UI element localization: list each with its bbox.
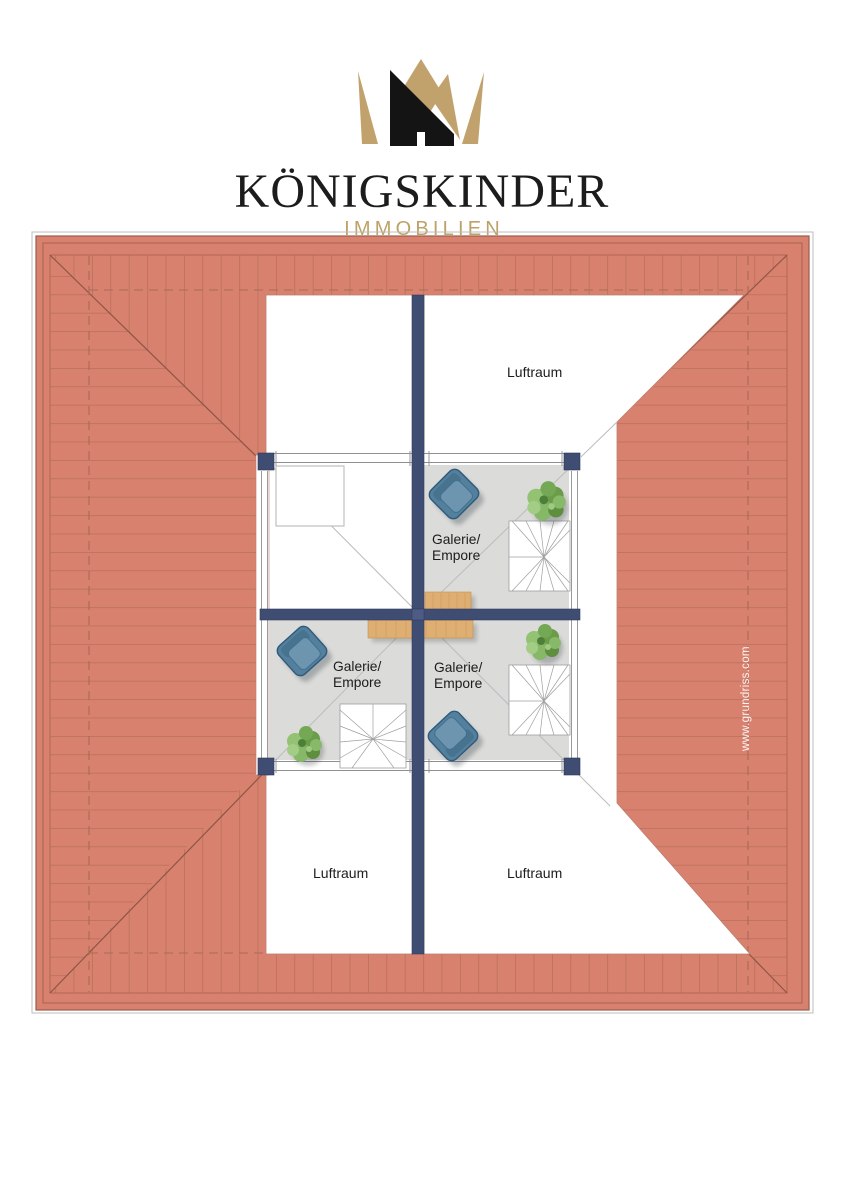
wall-crossing	[412, 609, 424, 620]
floorplan: Luftraum Luftraum Luftraum Galerie/ Empo…	[32, 232, 813, 1013]
label-gallery-top-right-2: Empore	[432, 548, 481, 563]
label-gallery-top-right-1: Galerie/	[432, 532, 480, 547]
staircase-bottom-left	[340, 704, 406, 768]
crown-logo-icon	[358, 59, 484, 146]
brand-name: KÖNIGSKINDER	[235, 165, 610, 218]
label-gallery-bottom-right-1: Galerie/	[434, 660, 482, 675]
expose-page: KÖNIGSKINDER IMMOBILIEN	[0, 0, 845, 1200]
wall-vertical	[412, 295, 424, 954]
label-luftraum-top-right: Luftraum	[507, 364, 562, 380]
staircase-bottom-right	[509, 665, 570, 735]
floorplan-canvas: KÖNIGSKINDER IMMOBILIEN	[0, 0, 845, 1200]
label-luftraum-bottom-left: Luftraum	[313, 865, 368, 881]
watermark: www.grundriss.com	[740, 646, 752, 752]
skylight-window	[276, 466, 344, 526]
staircase-top-right	[509, 521, 570, 591]
label-luftraum-bottom-right: Luftraum	[507, 865, 562, 881]
label-gallery-bottom-left-2: Empore	[333, 675, 382, 690]
label-gallery-bottom-right-2: Empore	[434, 676, 483, 691]
sideboard-upper	[425, 592, 471, 610]
label-gallery-bottom-left-1: Galerie/	[333, 659, 381, 674]
